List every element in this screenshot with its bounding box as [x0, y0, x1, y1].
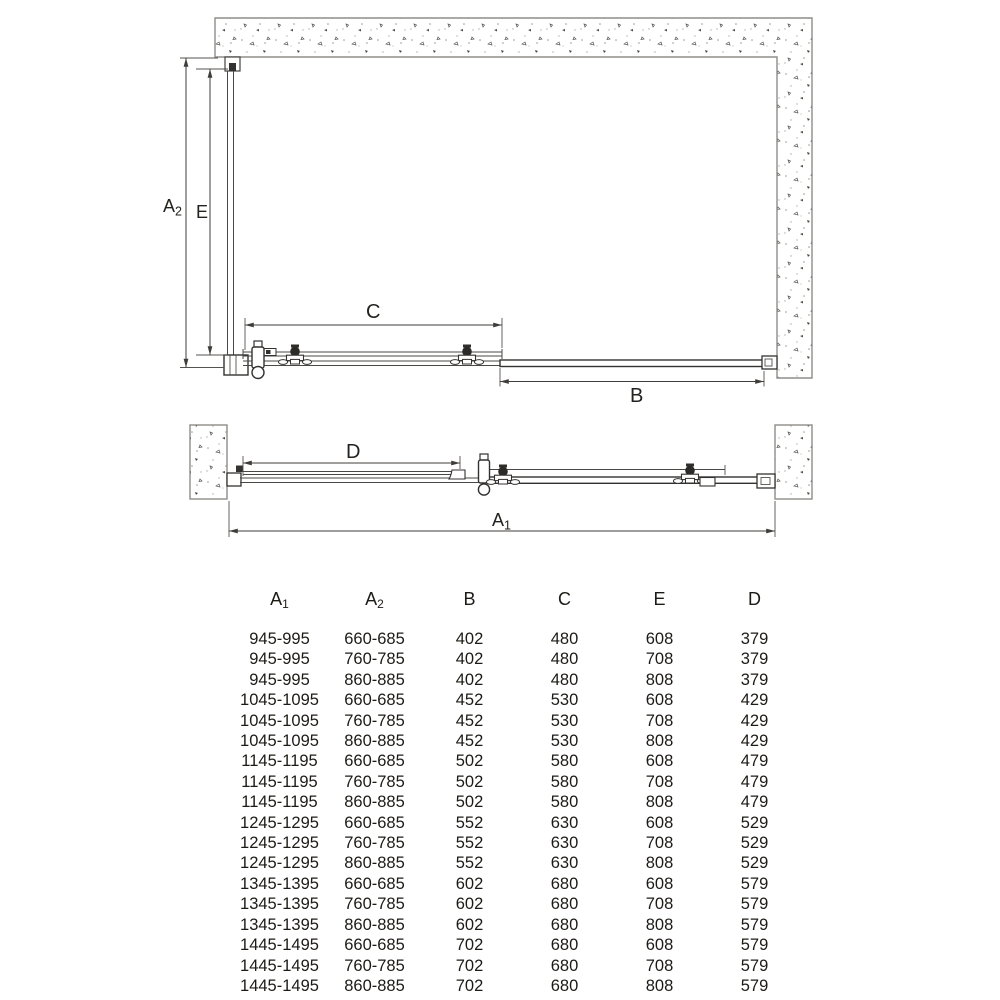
rail-view: D A1	[190, 425, 812, 537]
table-cell: 760-785	[327, 772, 422, 792]
table-cell: 1045-1095	[232, 711, 327, 731]
wall-clamp-right	[757, 474, 775, 488]
table-cell: 1045-1095	[232, 731, 327, 751]
table-row: 1145-1195860-885502580808479	[232, 792, 802, 812]
table-cell: 760-785	[327, 956, 422, 976]
table-cell: 402	[422, 649, 517, 669]
column-header-a2: A2	[327, 584, 422, 629]
column-header-d: D	[707, 584, 802, 629]
table-row: 1145-1195760-785502580708479	[232, 772, 802, 792]
table-cell: 680	[517, 874, 612, 894]
fixed-panel	[243, 356, 777, 369]
table-cell: 529	[707, 813, 802, 833]
table-cell: 429	[707, 711, 802, 731]
table-cell: 579	[707, 874, 802, 894]
table-cell: 808	[612, 976, 707, 996]
table-row: 945-995760-785402480708379	[232, 649, 802, 669]
table-cell: 1145-1195	[232, 792, 327, 812]
table-cell: 680	[517, 894, 612, 914]
table-row: 1145-1195660-685502580608479	[232, 751, 802, 771]
table-header: A1 A2 B C E D	[232, 584, 802, 629]
table-cell: 760-785	[327, 894, 422, 914]
dim-label-a2: A2	[163, 196, 182, 219]
side-panel-glass	[225, 57, 240, 372]
table-cell: 530	[517, 731, 612, 751]
table-cell: 1245-1295	[232, 833, 327, 853]
dim-label-c: C	[366, 301, 380, 323]
table-cell: 579	[707, 976, 802, 996]
table-cell: 529	[707, 833, 802, 853]
table-row: 1445-1495860-885702680808579	[232, 976, 802, 996]
fixed-panel-glass	[500, 360, 763, 367]
table-row: 1245-1295760-785552630708529	[232, 833, 802, 853]
table-cell: 708	[612, 956, 707, 976]
table-cell: 552	[422, 813, 517, 833]
table-cell: 760-785	[327, 833, 422, 853]
table-cell: 708	[612, 711, 707, 731]
table-cell: 680	[517, 915, 612, 935]
table-cell: 1345-1395	[232, 915, 327, 935]
table-cell: 708	[612, 833, 707, 853]
wall-plan	[215, 18, 812, 378]
table-cell: 1245-1295	[232, 813, 327, 833]
table-cell: 630	[517, 853, 612, 873]
dim-label-b: B	[630, 385, 643, 407]
table-cell: 608	[612, 935, 707, 955]
table-cell: 860-885	[327, 915, 422, 935]
table-cell: 479	[707, 772, 802, 792]
table-cell: 530	[517, 711, 612, 731]
table-cell: 708	[612, 772, 707, 792]
table-cell: 680	[517, 935, 612, 955]
table-cell: 608	[612, 813, 707, 833]
table-cell: 402	[422, 670, 517, 690]
panel-end-fitting	[449, 470, 465, 479]
table-cell: 552	[422, 833, 517, 853]
table-cell: 480	[517, 670, 612, 690]
table-row: 1245-1295660-685552630608529	[232, 813, 802, 833]
table-cell: 602	[422, 915, 517, 935]
table-cell: 1145-1195	[232, 772, 327, 792]
roller-icon	[486, 465, 519, 485]
table-cell: 502	[422, 792, 517, 812]
rail-bracket	[700, 478, 715, 487]
dim-label-a1: A1	[492, 510, 511, 533]
shower-enclosure-spec-sheet: A2 E C B	[0, 0, 1000, 1000]
table-cell: 529	[707, 853, 802, 873]
table-cell: 452	[422, 731, 517, 751]
table-cell: 579	[707, 894, 802, 914]
table-cell: 760-785	[327, 711, 422, 731]
dim-label-d: D	[346, 441, 360, 463]
dim-label-e: E	[196, 202, 208, 222]
table-row: 1045-1095760-785452530708429	[232, 711, 802, 731]
door-handle-icon	[252, 341, 264, 379]
table-cell: 608	[612, 690, 707, 710]
dim-c: C	[245, 301, 502, 350]
table-cell: 860-885	[327, 731, 422, 751]
column-header-a1: A1	[232, 584, 327, 629]
door-handle-icon	[478, 454, 489, 495]
wall-profile-clip	[229, 63, 236, 71]
table-body: 945-995660-685402480608379945-995760-785…	[232, 629, 802, 996]
table-cell: 502	[422, 751, 517, 771]
dim-a1: A1	[229, 501, 775, 537]
table-cell: 808	[612, 792, 707, 812]
table-cell: 945-995	[232, 670, 327, 690]
table-cell: 379	[707, 670, 802, 690]
table-cell: 660-685	[327, 874, 422, 894]
table-cell: 402	[422, 629, 517, 649]
table-cell: 580	[517, 792, 612, 812]
door-glass	[489, 477, 762, 483]
table-row: 1445-1495660-685702680608579	[232, 935, 802, 955]
table-cell: 1245-1295	[232, 853, 327, 873]
table-cell: 808	[612, 853, 707, 873]
dim-a2: A2	[163, 58, 224, 368]
table-row: 1045-1095860-885452530808429	[232, 731, 802, 751]
table-cell: 808	[612, 670, 707, 690]
table-cell: 1445-1495	[232, 956, 327, 976]
table-cell: 680	[517, 976, 612, 996]
table-cell: 760-785	[327, 649, 422, 669]
table-cell: 1145-1195	[232, 751, 327, 771]
dimension-table: A1 A2 B C E D 945-995660-685402480608379…	[232, 584, 802, 996]
table-cell: 660-685	[327, 935, 422, 955]
dim-b: B	[500, 368, 764, 407]
table-cell: 552	[422, 853, 517, 873]
wall-profile-right	[762, 356, 777, 369]
table-cell: 708	[612, 649, 707, 669]
table-cell: 608	[612, 874, 707, 894]
table-cell: 708	[612, 894, 707, 914]
table-cell: 1445-1495	[232, 935, 327, 955]
table-cell: 480	[517, 629, 612, 649]
table-row: 1345-1395860-885602680808579	[232, 915, 802, 935]
table-cell: 1445-1495	[232, 976, 327, 996]
table-cell: 479	[707, 792, 802, 812]
table-cell: 660-685	[327, 690, 422, 710]
table-cell: 530	[517, 690, 612, 710]
technical-drawing: A2 E C B	[0, 0, 1000, 575]
table-cell: 452	[422, 711, 517, 731]
table-cell: 452	[422, 690, 517, 710]
table-cell: 680	[517, 956, 612, 976]
table-header-row: A1 A2 B C E D	[232, 584, 802, 629]
table-row: 1345-1395660-685602680608579	[232, 874, 802, 894]
table-cell: 579	[707, 935, 802, 955]
plan-view: A2 E C B	[163, 18, 812, 407]
door-stopper	[264, 349, 276, 356]
table-cell: 630	[517, 833, 612, 853]
table-row: 1445-1495760-785702680708579	[232, 956, 802, 976]
table-cell: 379	[707, 629, 802, 649]
table-cell: 702	[422, 935, 517, 955]
table-cell: 945-995	[232, 649, 327, 669]
table-row: 945-995660-685402480608379	[232, 629, 802, 649]
table-cell: 479	[707, 751, 802, 771]
column-header-b: B	[422, 584, 517, 629]
sliding-door-front	[489, 465, 762, 483]
table-cell: 630	[517, 813, 612, 833]
roller-icon	[450, 345, 483, 365]
table-cell: 860-885	[327, 792, 422, 812]
table-cell: 429	[707, 690, 802, 710]
table-cell: 660-685	[327, 813, 422, 833]
dim-e: E	[196, 69, 228, 355]
table-cell: 602	[422, 894, 517, 914]
table-cell: 480	[517, 649, 612, 669]
table-cell: 579	[707, 915, 802, 935]
table-cell: 1345-1395	[232, 874, 327, 894]
roller-icon	[278, 345, 311, 365]
table-cell: 1345-1395	[232, 894, 327, 914]
table-cell: 608	[612, 629, 707, 649]
table-row: 1345-1395760-785602680708579	[232, 894, 802, 914]
table-cell: 1045-1095	[232, 690, 327, 710]
table-cell: 702	[422, 976, 517, 996]
table-cell: 580	[517, 751, 612, 771]
table-cell: 579	[707, 956, 802, 976]
wall-right	[775, 425, 812, 499]
table-cell: 608	[612, 751, 707, 771]
column-header-c: C	[517, 584, 612, 629]
table-cell: 808	[612, 731, 707, 751]
wall-left	[190, 425, 227, 499]
table-cell: 860-885	[327, 976, 422, 996]
table-cell: 602	[422, 874, 517, 894]
table-cell: 502	[422, 772, 517, 792]
table-cell: 379	[707, 649, 802, 669]
table-cell: 808	[612, 915, 707, 935]
table-cell: 945-995	[232, 629, 327, 649]
table-cell: 860-885	[327, 853, 422, 873]
column-header-e: E	[612, 584, 707, 629]
dim-d: D	[243, 441, 460, 476]
table-cell: 860-885	[327, 670, 422, 690]
table-row: 1245-1295860-885552630808529	[232, 853, 802, 873]
table-row: 945-995860-885402480808379	[232, 670, 802, 690]
table-row: 1045-1095660-685452530608429	[232, 690, 802, 710]
table-cell: 429	[707, 731, 802, 751]
table-cell: 702	[422, 956, 517, 976]
table-cell: 580	[517, 772, 612, 792]
table-cell: 660-685	[327, 751, 422, 771]
table-cell: 660-685	[327, 629, 422, 649]
